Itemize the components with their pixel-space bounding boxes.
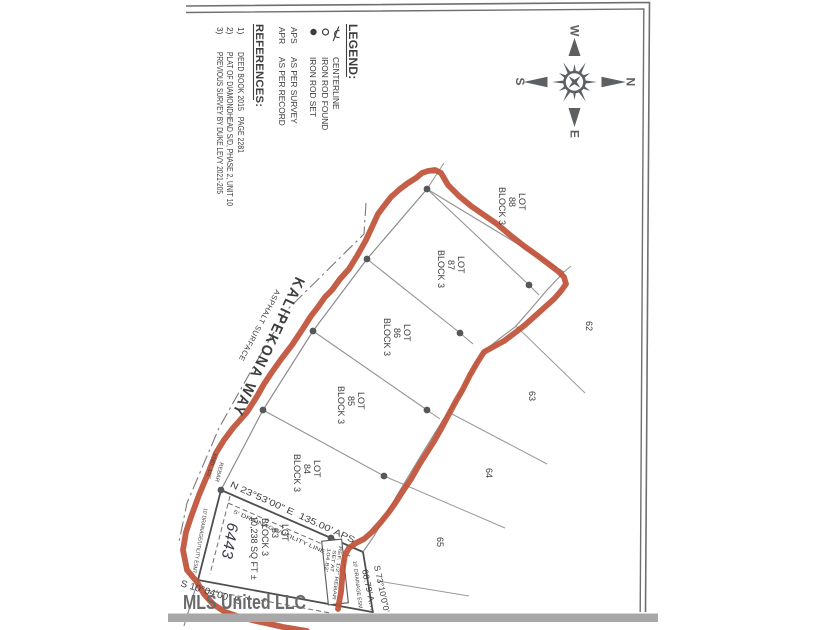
svg-text:3): 3) bbox=[215, 27, 225, 35]
svg-text:AS PER RECORD: AS PER RECORD bbox=[277, 57, 287, 126]
svg-text:S: S bbox=[513, 78, 527, 86]
svg-text:LOT: LOT bbox=[356, 392, 366, 410]
svg-text:LEGEND:: LEGEND: bbox=[346, 24, 360, 79]
svg-text:CENTERLINE: CENTERLINE bbox=[331, 57, 341, 110]
svg-text:63: 63 bbox=[527, 391, 537, 401]
svg-text:2): 2) bbox=[225, 27, 235, 35]
svg-text:PREVIOUS SURVEY BY DUKE LEVY 2: PREVIOUS SURVEY BY DUKE LEVY 2021-205 bbox=[215, 52, 225, 194]
svg-text:BLOCK 3: BLOCK 3 bbox=[336, 386, 346, 424]
svg-text:DEED BOOK 2015 PAGE 2281: DEED BOOK 2015 PAGE 2281 bbox=[236, 52, 246, 153]
svg-text:LOT: LOT bbox=[517, 193, 527, 211]
svg-text:62: 62 bbox=[584, 321, 594, 331]
svg-text:N: N bbox=[624, 78, 638, 87]
svg-text:BLOCK 3: BLOCK 3 bbox=[436, 250, 446, 288]
svg-text:APS: APS bbox=[289, 27, 299, 44]
svg-text:BLOCK 3: BLOCK 3 bbox=[497, 187, 507, 225]
svg-text:PLAT OF DIAMONDHEAD S/D, PHASE: PLAT OF DIAMONDHEAD S/D, PHASE 2, UNIT 1… bbox=[225, 52, 235, 206]
svg-text:APR: APR bbox=[277, 27, 287, 44]
svg-text:IRON ROD SET: IRON ROD SET bbox=[308, 57, 318, 117]
svg-text:E: E bbox=[568, 130, 582, 138]
svg-text:LOT: LOT bbox=[402, 324, 412, 342]
svg-text:LOT: LOT bbox=[312, 460, 322, 478]
svg-text:W: W bbox=[568, 25, 582, 37]
svg-text:88: 88 bbox=[507, 197, 517, 207]
svg-text:65: 65 bbox=[435, 537, 445, 547]
svg-text:87: 87 bbox=[446, 260, 456, 270]
svg-text:AS PER SURVEY: AS PER SURVEY bbox=[289, 57, 299, 124]
svg-text:84: 84 bbox=[302, 464, 312, 474]
svg-text:86: 86 bbox=[392, 328, 402, 338]
svg-text:REFERENCES:: REFERENCES: bbox=[253, 24, 265, 107]
svg-text:BLOCK 3: BLOCK 3 bbox=[292, 454, 302, 492]
svg-text:1): 1) bbox=[236, 27, 246, 35]
svg-text:85: 85 bbox=[346, 396, 356, 406]
svg-text:64: 64 bbox=[484, 468, 494, 478]
svg-text:BLOCK 3: BLOCK 3 bbox=[382, 318, 392, 356]
svg-text:IRON ROD FOUND: IRON ROD FOUND bbox=[320, 57, 330, 130]
svg-text:LOT: LOT bbox=[456, 256, 466, 274]
svg-text:MLS United LLC: MLS United LLC bbox=[183, 591, 306, 614]
